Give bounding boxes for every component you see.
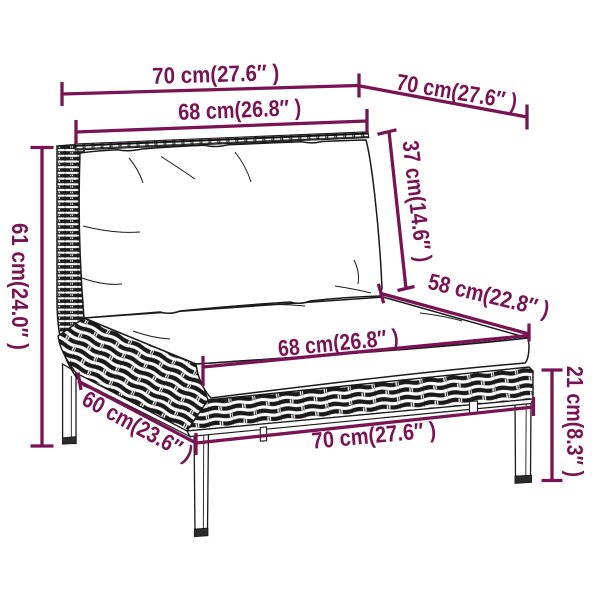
svg-text:70 cm(27.6″ ): 70 cm(27.6″ ) <box>152 59 280 89</box>
svg-text:61 cm(24.0″ ): 61 cm(24.0″ ) <box>7 223 33 350</box>
svg-text:21 cm(8.3″ ): 21 cm(8.3″ ) <box>562 366 588 477</box>
svg-text:68 cm(26.8″ ): 68 cm(26.8″ ) <box>178 94 302 125</box>
